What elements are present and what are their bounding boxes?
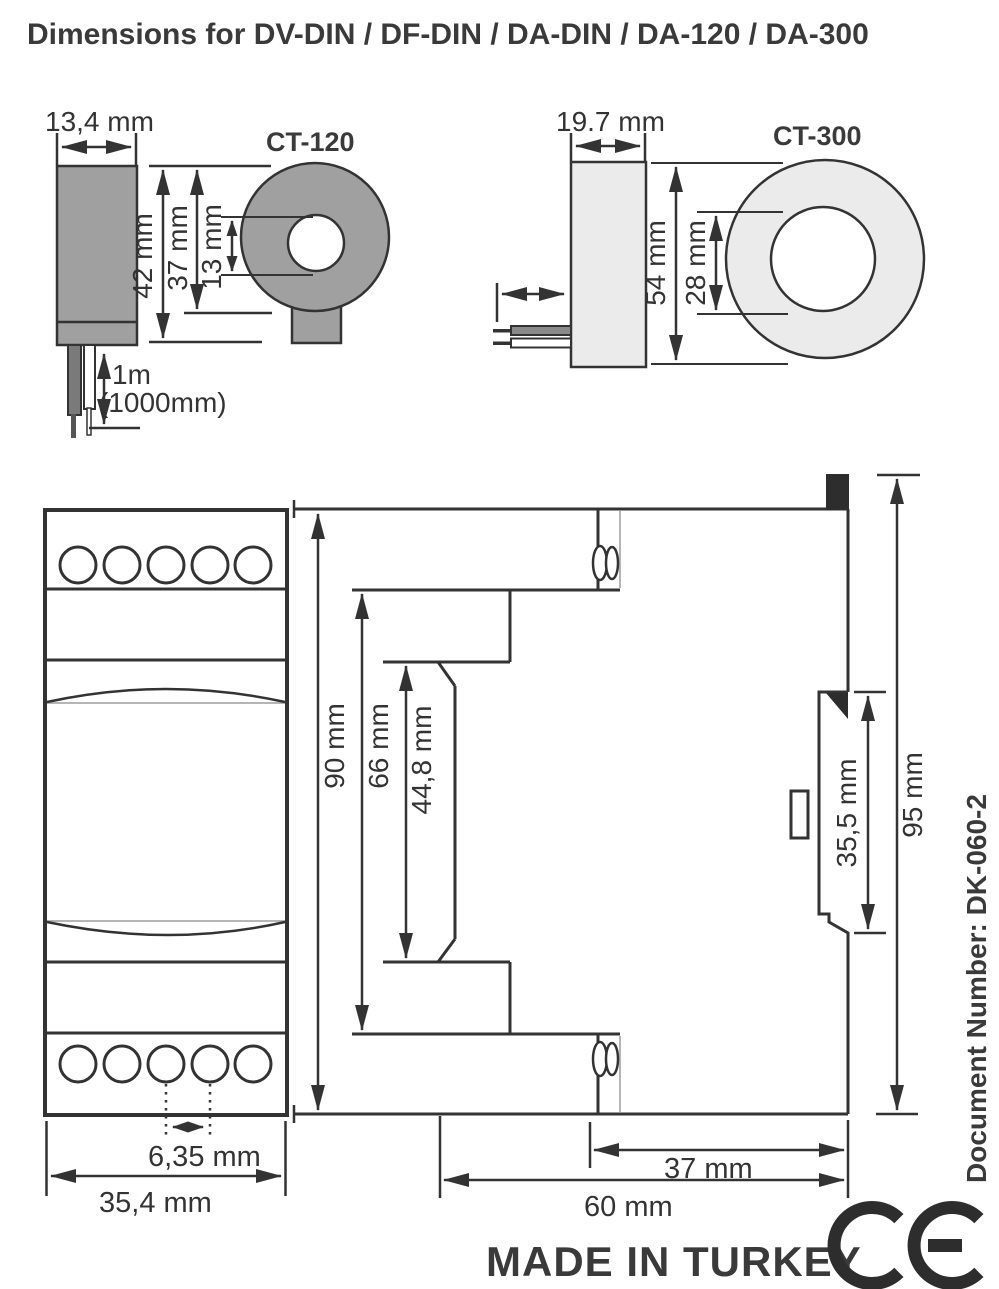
page-title: Dimensions for DV-DIN / DF-DIN / DA-DIN … <box>27 18 869 51</box>
wire-dark <box>68 345 81 415</box>
technical-drawing: Dimensions for DV-DIN / DF-DIN / DA-DIN … <box>0 0 999 1289</box>
ct120-label: CT-120 <box>266 127 355 157</box>
ct300-side-view-body <box>571 162 646 367</box>
terminal-screw-side <box>606 547 618 579</box>
ct120-outer-dim-label: 37 mm <box>162 205 193 291</box>
ct120-diagram: 13,4 mm 1m (1000mm) 42 mm 37 mm <box>45 106 389 438</box>
made-in-label: MADE IN TURKEY <box>486 1238 862 1285</box>
document-number: Document Number: DK-060-2 <box>961 794 992 1183</box>
ct120-hole-dim-label: 13 mm <box>196 204 227 290</box>
ct300-outer-dim-label: 54 mm <box>640 220 671 306</box>
ct120-width-dim-label: 13,4 mm <box>45 106 154 137</box>
side-chamfer <box>438 662 455 686</box>
side-chamfer <box>438 939 455 962</box>
din-rail-slot <box>791 791 808 838</box>
ct300-cable-wires <box>493 326 571 348</box>
ct120-cable-length-alt-label: (1000mm) <box>99 387 227 418</box>
terminal-circle <box>104 1046 140 1082</box>
din-rail-hook-wedge <box>826 693 848 719</box>
ct120-cable-wires <box>68 345 95 438</box>
terminal-circle <box>192 547 228 583</box>
terminal-circle <box>60 1046 96 1082</box>
terminal-circle <box>235 547 271 583</box>
ct120-cable-length-label: 1m <box>112 359 151 390</box>
wire-white-lead <box>493 342 512 346</box>
terminal-circle <box>60 547 96 583</box>
terminal-circle <box>148 547 184 583</box>
front-width-dim-label: 35,4 mm <box>99 1187 212 1219</box>
wire-dark-tip <box>71 414 76 438</box>
total-depth-dim-label: 60 mm <box>584 1191 673 1223</box>
terminal-circle <box>148 1046 184 1082</box>
terminal-circle <box>104 547 140 583</box>
dimensions-drawing-page: Dimensions for DV-DIN / DF-DIN / DA-DIN … <box>0 0 999 1289</box>
front-top-terminals <box>60 547 271 583</box>
ct300-hole-dim-label: 28 mm <box>680 220 711 306</box>
wire-white <box>511 339 571 348</box>
terminal-screw-side <box>606 1043 618 1075</box>
side-upper-height-dim-label: 66 mm <box>363 703 394 789</box>
ct300-label: CT-300 <box>773 121 862 151</box>
din-rail-clip-top <box>826 474 849 510</box>
front-height-dim-label: 90 mm <box>319 703 350 789</box>
rail-recess-dim-label: 35,5 mm <box>831 759 862 868</box>
ct120-ring-hole <box>288 215 344 271</box>
front-view-outline <box>45 510 287 1115</box>
front-bottom-terminals <box>60 1046 271 1082</box>
ct300-diagram: 19.7 mm 54 mm 28 mm CT-300 <box>493 106 924 367</box>
wire-dark-lead <box>493 329 512 333</box>
ct300-ring-hole <box>771 207 875 311</box>
total-height-dim-label: 95 mm <box>897 752 928 838</box>
din-module-front-view: 6,35 mm 35,4 mm 90 mm <box>45 500 350 1219</box>
terminal-pitch-dim-label: 6,35 mm <box>148 1141 261 1173</box>
ct120-height-dim-label: 42 mm <box>127 213 158 299</box>
ct120-side-view-body <box>57 166 137 345</box>
wire-dark <box>511 326 571 335</box>
side-face-height-dim-label: 44,8 mm <box>406 706 437 815</box>
ct300-width-dim-label: 19.7 mm <box>556 106 665 137</box>
terminal-circle <box>192 1046 228 1082</box>
din-module-side-view: 66 mm 44,8 mm 35,5 mm 95 mm 37 mm 60 mm <box>294 474 928 1223</box>
wire-white-tip <box>87 408 91 435</box>
terminal-circle <box>235 1046 271 1082</box>
din-rail-channel <box>819 692 848 1114</box>
wire-white <box>84 345 95 409</box>
